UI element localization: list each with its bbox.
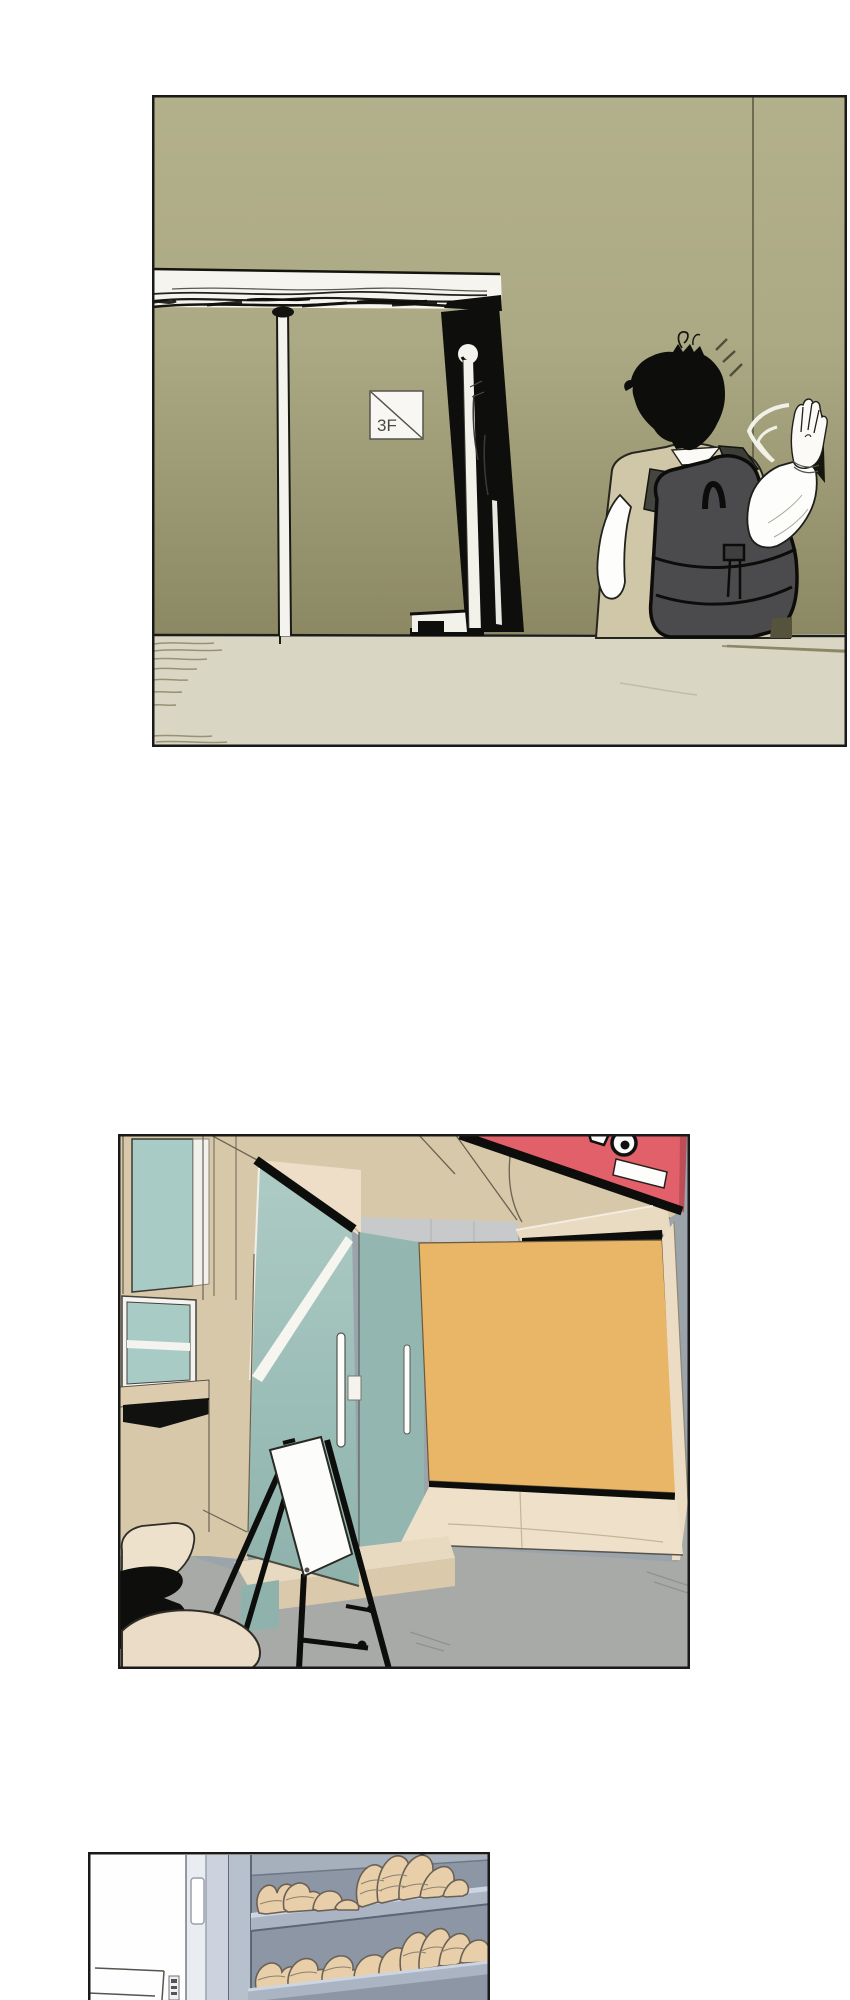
- svg-text:3F: 3F: [377, 416, 397, 435]
